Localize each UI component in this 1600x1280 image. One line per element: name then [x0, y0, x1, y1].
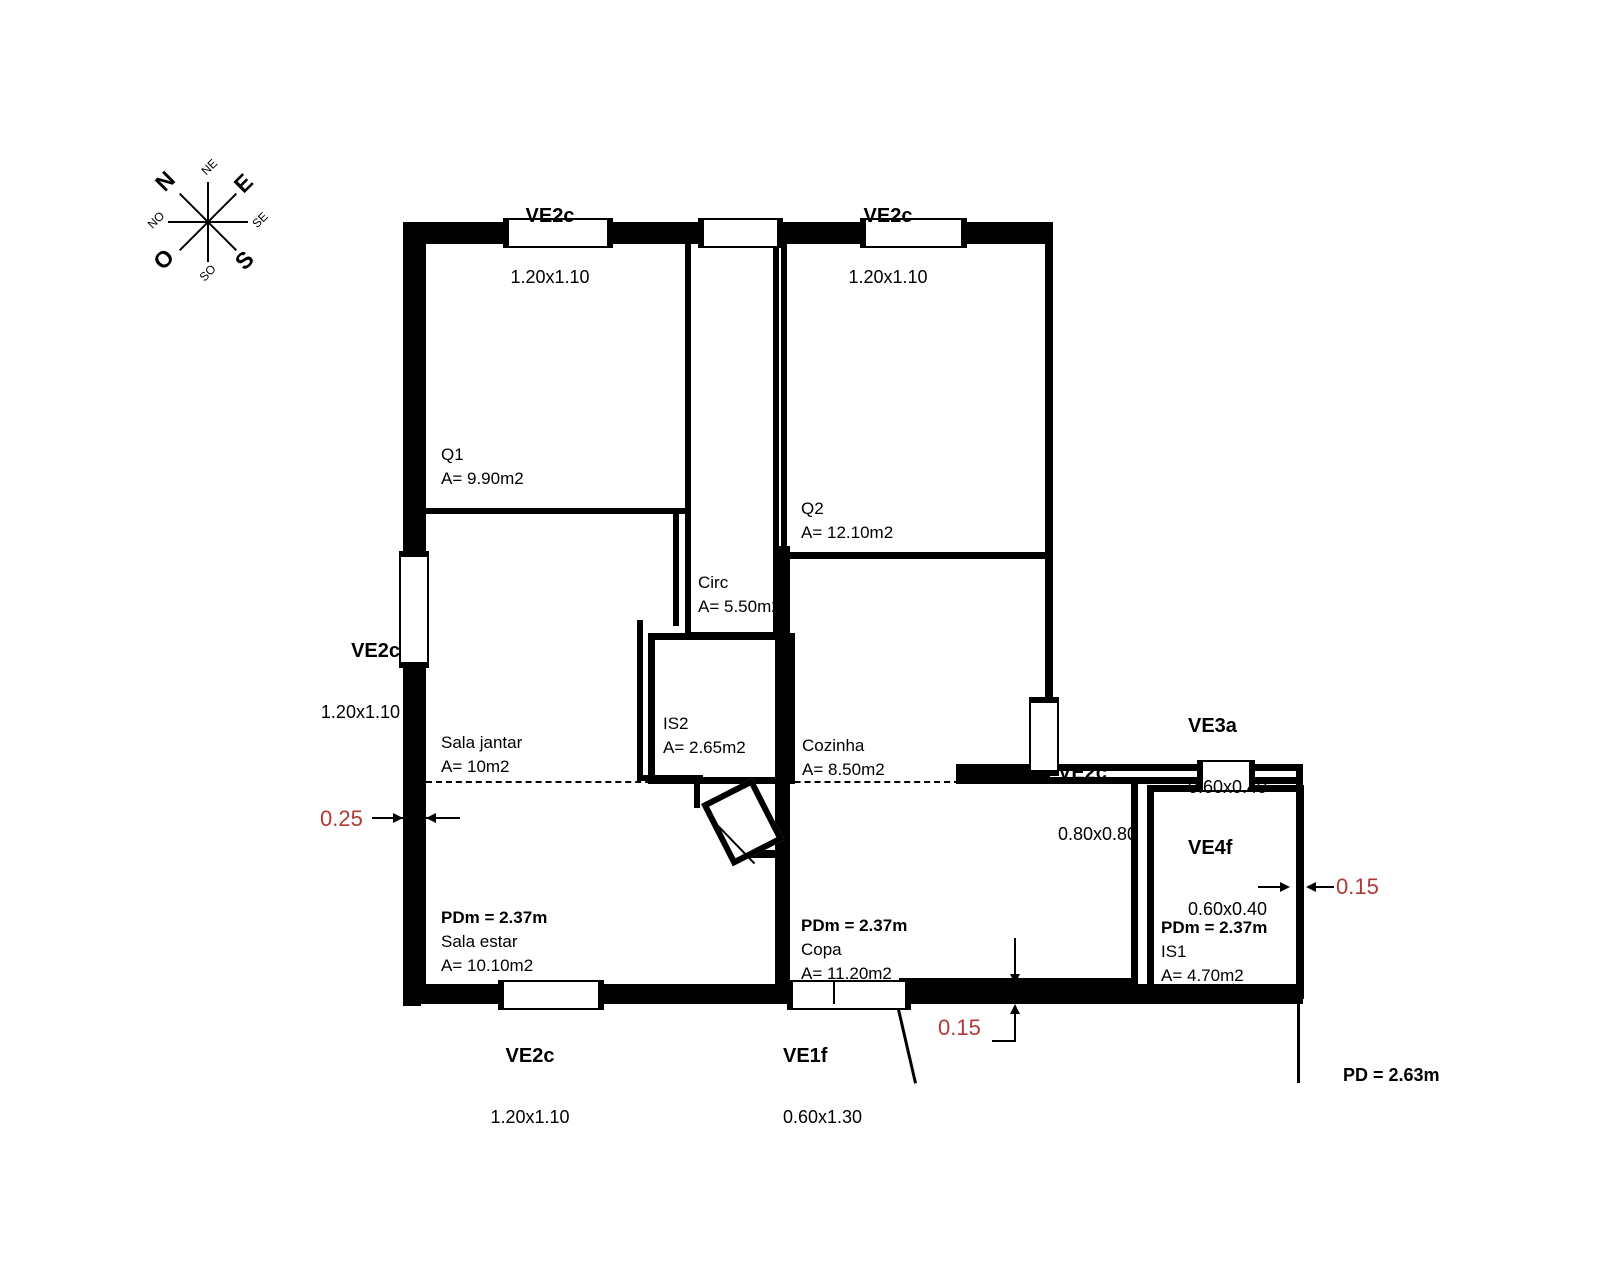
room-area: A= 12.10m2 — [801, 523, 893, 542]
room-label-q1: Q1A= 9.90m2 — [441, 443, 524, 491]
window-code-ve3a: VE3a — [1188, 714, 1267, 739]
room-label-is2: IS2A= 2.65m2 — [663, 712, 746, 760]
window-label-left: VE2c 1.20x1.10 — [302, 603, 400, 761]
window-label-entrance: VE1f 0.60x1.30 — [783, 1008, 862, 1166]
room-area: A= 4.70m2 — [1161, 966, 1244, 985]
room-area: A= 11.20m2 — [801, 964, 892, 983]
arrowhead-left — [1306, 882, 1316, 892]
wing-wall-east-extension-line — [1297, 1004, 1300, 1083]
arrowhead-up — [1010, 1004, 1020, 1014]
window-size: 1.20x1.10 — [302, 700, 400, 725]
window-size: 1.20x1.10 — [450, 1105, 610, 1130]
dimension-right-wall: 0.15 — [1336, 874, 1379, 900]
room-area: A= 5.50m2 — [698, 597, 781, 616]
window-size-ve3a: 0.60x0.40 — [1188, 775, 1267, 800]
room-name: Q2 — [801, 499, 824, 518]
room-name: Sala estar — [441, 932, 518, 951]
room-name: Circ — [698, 573, 728, 592]
room-area: A= 10.10m2 — [441, 956, 533, 975]
room-name: IS1 — [1161, 942, 1187, 961]
window-size: 0.80x0.80 — [1058, 822, 1137, 847]
window-code: VE2c — [1058, 761, 1137, 786]
window-code: VE2c — [302, 639, 400, 664]
room-label-is1: PDm = 2.37mIS1A= 4.70m2 — [1161, 916, 1267, 988]
room-area: A= 8.50m2 — [802, 760, 885, 779]
room-label-copa: PDm = 2.37mCopaA= 11.20m2 — [801, 914, 907, 986]
room-label-cozinha: CozinhaA= 8.50m2 — [802, 734, 885, 782]
door-jamb-top — [694, 775, 700, 808]
window-ve2c-bottom — [498, 980, 604, 1010]
compass-se-label: SE — [249, 209, 270, 230]
exterior-wall-right-upper — [1046, 222, 1053, 703]
room-area: A= 2.65m2 — [663, 738, 746, 757]
room-ceiling: PDm = 2.37m — [801, 916, 907, 935]
dimension-tick — [992, 1040, 1016, 1042]
arrowhead-right — [393, 813, 403, 823]
window-code-ve4f: VE4f — [1188, 836, 1267, 861]
window-label-east: VE2c 0.80x0.80 — [1058, 725, 1137, 883]
arrowhead-left — [426, 813, 436, 823]
opening-circ-top — [698, 218, 783, 248]
window-size: 1.20x1.10 — [470, 265, 630, 290]
window-code: VE2c — [450, 1044, 610, 1069]
compass-west-label: O — [148, 244, 180, 276]
window-code: VE2c — [808, 204, 968, 229]
room-name: Q1 — [441, 445, 464, 464]
window-code: VE1f — [783, 1044, 862, 1069]
arrowhead-down — [1010, 974, 1020, 984]
window-label-top-left: VE2c 1.20x1.10 — [470, 168, 630, 326]
ceiling-height-note: PD = 2.63m — [1343, 1063, 1440, 1087]
wall-sala-circ — [673, 508, 679, 626]
room-label-sala-estar: PDm = 2.37mSala estarA= 10.10m2 — [441, 906, 547, 978]
room-label-q2: Q2A= 12.10m2 — [801, 497, 893, 545]
room-name: Sala jantar — [441, 733, 522, 752]
dimension-line — [1014, 938, 1016, 976]
compass-ne-label: NE — [198, 156, 220, 178]
room-label-sala-jantar: Sala jantarA= 10m2 — [441, 731, 522, 779]
dimension-bottom-wall: 0.15 — [938, 1015, 981, 1041]
room-area: A= 9.90m2 — [441, 469, 524, 488]
compass-north-label: N — [150, 166, 181, 197]
room-name: IS2 — [663, 714, 689, 733]
wall-sala-is2 — [637, 620, 643, 781]
window-label-bottom: VE2c 1.20x1.10 — [450, 1008, 610, 1166]
arrowhead-right — [1280, 882, 1290, 892]
window-size: 0.60x1.30 — [783, 1105, 862, 1130]
window-ve2c-east — [1029, 697, 1059, 776]
compass-so-label: SO — [197, 262, 219, 284]
window-size: 1.20x1.10 — [808, 265, 968, 290]
room-is2-outline — [648, 633, 795, 784]
room-ceiling: PDm = 2.37m — [1161, 918, 1267, 937]
window-label-top-right: VE2c 1.20x1.10 — [808, 168, 968, 326]
window-code: VE2c — [470, 204, 630, 229]
dimension-left-wall: 0.25 — [320, 806, 363, 832]
room-name: Cozinha — [802, 736, 864, 755]
floor-plan: N E O S NE SE SO NO — [0, 0, 1600, 1280]
dimension-line — [1014, 1012, 1016, 1042]
room-name: Copa — [801, 940, 842, 959]
wing-wall-east-outer — [1296, 764, 1303, 1004]
room-area: A= 10m2 — [441, 757, 510, 776]
entrance-door-swing-line — [896, 1005, 917, 1084]
room-label-circ: CircA= 5.50m2 — [698, 571, 781, 619]
compass-no-label: NO — [145, 209, 168, 232]
room-ceiling: PDm = 2.37m — [441, 908, 547, 927]
compass-south-label: S — [230, 246, 260, 276]
window-ve2c-left — [399, 551, 429, 668]
